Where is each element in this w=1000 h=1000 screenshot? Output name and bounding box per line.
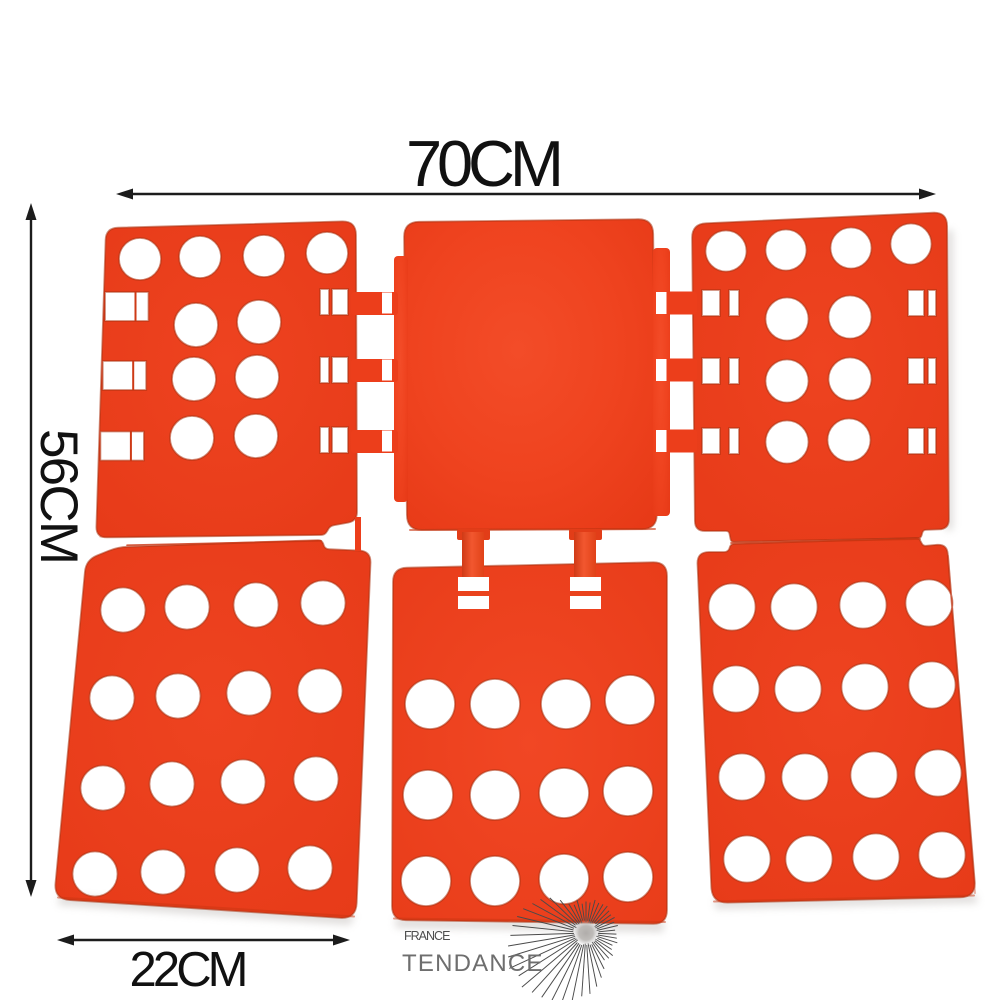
svg-text:22CM: 22CM: [130, 943, 249, 997]
svg-text:56CM: 56CM: [29, 429, 88, 565]
svg-text:TENDANCE: TENDANCE: [402, 950, 545, 977]
svg-text:FRANCE: FRANCE: [404, 929, 451, 943]
svg-text:70CM: 70CM: [406, 127, 564, 200]
